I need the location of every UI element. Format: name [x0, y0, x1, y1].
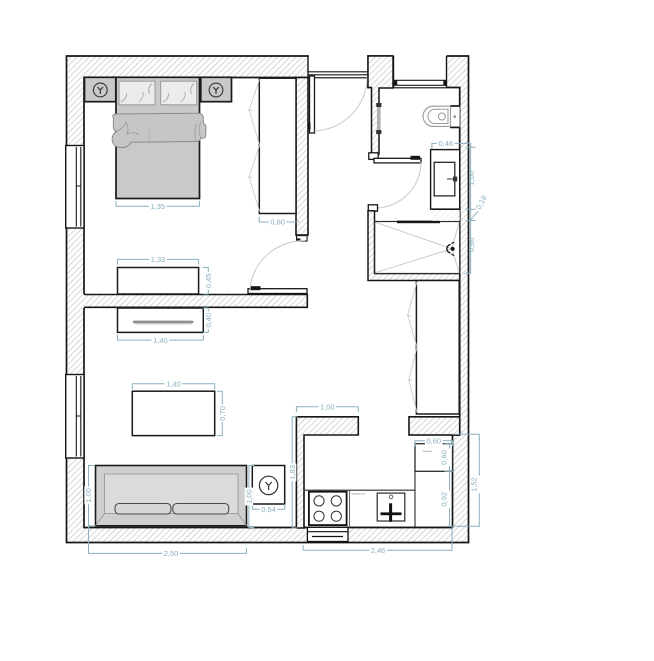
- svg-text:1,52: 1,52: [470, 477, 479, 492]
- svg-text:GENERAL: GENERAL: [422, 450, 433, 453]
- svg-text:1,00: 1,00: [320, 402, 335, 411]
- svg-text:0,45: 0,45: [204, 273, 213, 288]
- svg-text:0,60: 0,60: [270, 218, 285, 227]
- svg-text:0,60: 0,60: [440, 450, 449, 465]
- svg-text:1,40: 1,40: [166, 379, 181, 388]
- svg-text:1,00: 1,00: [84, 488, 93, 503]
- svg-text:0,70: 0,70: [218, 406, 227, 421]
- svg-text:0,46: 0,46: [438, 139, 453, 148]
- svg-text:1,00: 1,00: [245, 489, 254, 504]
- svg-text:2,50: 2,50: [164, 549, 179, 558]
- svg-text:1,35: 1,35: [150, 202, 165, 211]
- svg-text:2,46: 2,46: [371, 546, 386, 555]
- svg-text:1,40: 1,40: [153, 336, 168, 345]
- svg-text:0,92: 0,92: [440, 492, 449, 507]
- svg-text:0,54: 0,54: [261, 505, 276, 514]
- svg-text:LAVAVAJILLAS: LAVAVAJILLAS: [351, 492, 366, 495]
- svg-text:0,60: 0,60: [426, 437, 441, 446]
- svg-text:0,40: 0,40: [204, 313, 213, 328]
- svg-text:1,00: 1,00: [467, 171, 476, 186]
- svg-text:0,86: 0,86: [467, 237, 476, 252]
- svg-text:1,33: 1,33: [151, 255, 166, 264]
- svg-text:1,83: 1,83: [288, 465, 297, 480]
